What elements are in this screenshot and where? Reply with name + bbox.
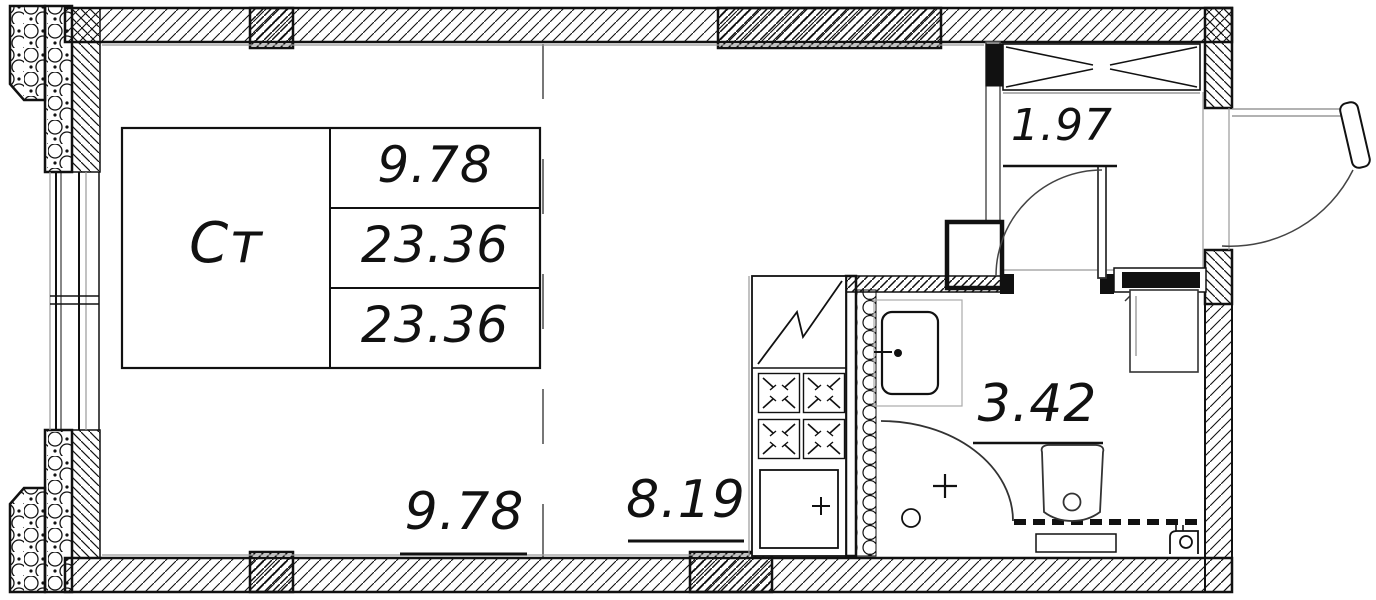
- bathroom-sink-icon: [874, 300, 962, 406]
- top-wall: [65, 8, 1232, 42]
- towel-dryer-icon: [1170, 525, 1198, 554]
- left-wall-pier-bottom: [72, 430, 100, 558]
- insulation-strip-bottom: [45, 430, 72, 592]
- table-row-2-value: 23.36: [335, 220, 535, 270]
- washing-machine-icon: [1125, 290, 1198, 372]
- entrance-door-leaf: [1339, 101, 1371, 169]
- table-row-3-value: 23.36: [335, 300, 535, 350]
- entrance-door-icon: [1222, 101, 1371, 246]
- right-wall-below-door: [1205, 250, 1232, 304]
- shower-icon: [881, 421, 1013, 527]
- hall-partition: [947, 42, 1003, 288]
- vent-shaft-fill: [1122, 272, 1200, 288]
- unit-type-label: Ст: [126, 216, 326, 272]
- right-wall-lower: [1205, 304, 1232, 592]
- table-row-1-value: 9.78: [335, 140, 535, 190]
- living-area-label: 9.78: [382, 486, 547, 538]
- bottom-wall-pier-right: [690, 552, 772, 592]
- top-wall-pier-right: [718, 8, 941, 48]
- toilet-icon: [1042, 445, 1104, 521]
- insulation-corner-bottom-outer: [10, 488, 45, 592]
- bottom-wall: [65, 558, 1232, 592]
- hall-area-label: 1.97: [987, 104, 1137, 148]
- insulation-strip-top: [45, 6, 72, 172]
- floor-plan: Ст 9.78 23.36 23.36 1.97 3.42 8.19 9.78: [0, 0, 1376, 600]
- kitchen-area-label: 8.19: [600, 474, 772, 526]
- bathroom-door-icon: [996, 166, 1106, 278]
- top-wall-pier-left: [250, 8, 293, 48]
- window-icon: [50, 172, 99, 430]
- insulation-corner-top-outer: [10, 6, 45, 100]
- left-wall-pier-top: [72, 8, 100, 172]
- bottom-wall-pier-left: [250, 552, 293, 592]
- under-bath-shelf: [1036, 534, 1116, 552]
- bathroom-area-label: 3.42: [950, 378, 1125, 430]
- right-wall-above-door: [1205, 8, 1232, 108]
- wardrobe-icon: [1003, 44, 1200, 93]
